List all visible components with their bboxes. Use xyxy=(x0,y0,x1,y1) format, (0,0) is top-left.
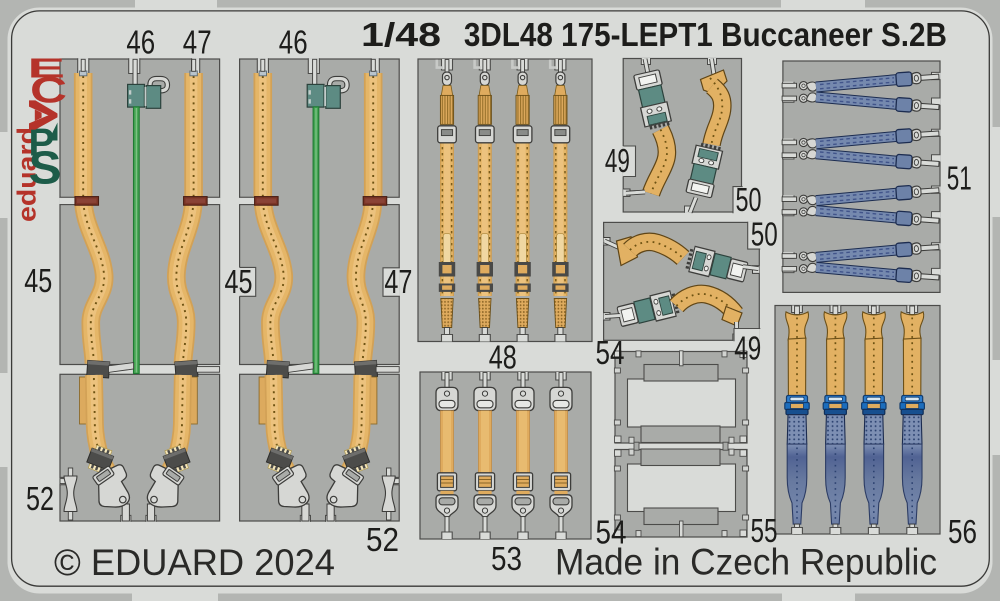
svg-text:51: 51 xyxy=(947,159,972,196)
svg-text:© EDUARD 2024: © EDUARD 2024 xyxy=(54,542,335,583)
svg-text:48: 48 xyxy=(489,339,517,376)
svg-text:49: 49 xyxy=(734,330,761,367)
svg-text:49: 49 xyxy=(605,142,630,179)
svg-text:53: 53 xyxy=(491,540,522,577)
svg-text:Made in Czech Republic: Made in Czech Republic xyxy=(555,542,937,583)
svg-text:50: 50 xyxy=(736,181,762,218)
svg-text:52: 52 xyxy=(366,521,399,558)
svg-text:47: 47 xyxy=(183,24,212,61)
svg-text:56: 56 xyxy=(948,513,977,550)
svg-text:45: 45 xyxy=(225,263,253,300)
svg-text:1/48: 1/48 xyxy=(361,16,441,53)
svg-text:45: 45 xyxy=(24,262,52,299)
svg-text:46: 46 xyxy=(126,24,155,61)
svg-text:46: 46 xyxy=(279,24,308,61)
svg-text:E: E xyxy=(28,52,66,83)
svg-text:47: 47 xyxy=(384,263,412,300)
svg-text:3DL48 175-LEPT1 Buccaneer S.2B: 3DL48 175-LEPT1 Buccaneer S.2B xyxy=(464,16,947,53)
svg-text:54: 54 xyxy=(596,334,625,371)
svg-text:52: 52 xyxy=(26,480,54,517)
svg-text:50: 50 xyxy=(751,216,778,253)
